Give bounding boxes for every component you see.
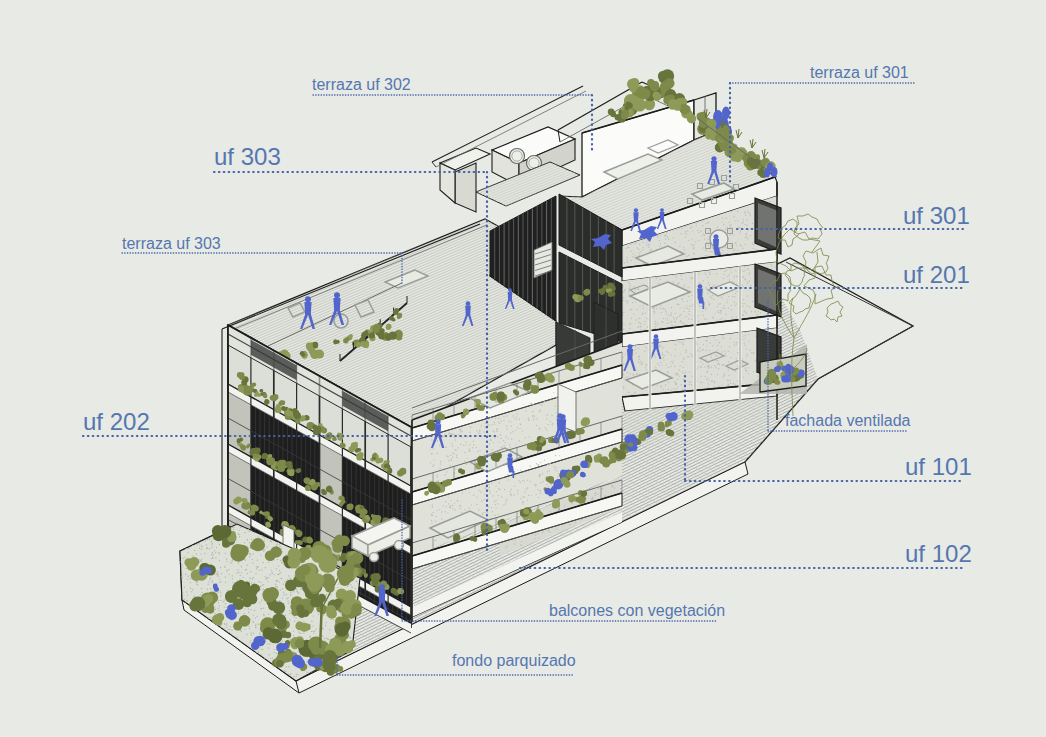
svg-text:terraza uf 303: terraza uf 303: [122, 235, 221, 252]
svg-text:uf 301: uf 301: [903, 202, 970, 229]
svg-text:uf 202: uf 202: [83, 408, 150, 435]
svg-text:uf 102: uf 102: [905, 540, 972, 567]
svg-text:terraza uf 302: terraza uf 302: [312, 76, 411, 93]
svg-text:uf 201: uf 201: [903, 261, 970, 288]
svg-text:balcones con vegetación: balcones con vegetación: [549, 602, 725, 619]
svg-text:fondo parquizado: fondo parquizado: [452, 652, 576, 669]
svg-text:uf 303: uf 303: [214, 143, 281, 170]
svg-text:uf 101: uf 101: [905, 453, 972, 480]
svg-text:terraza uf 301: terraza uf 301: [810, 64, 909, 81]
svg-text:fachada ventilada: fachada ventilada: [785, 412, 911, 429]
